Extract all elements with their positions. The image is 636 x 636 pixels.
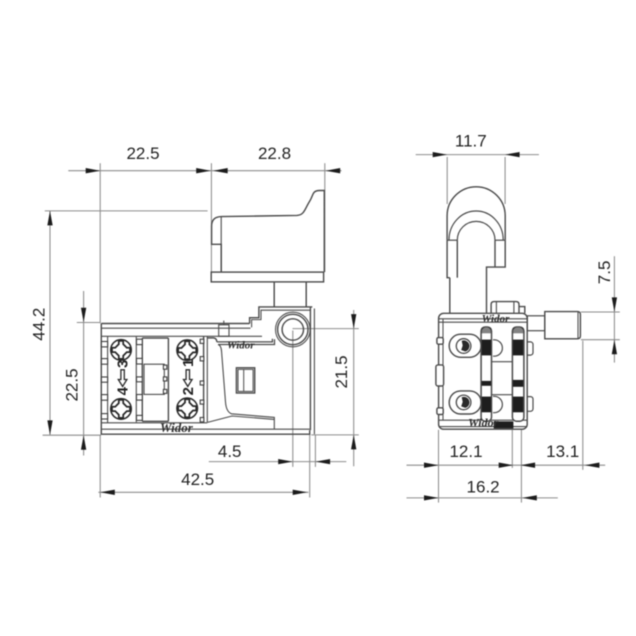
svg-text:13.1: 13.1 — [546, 442, 579, 461]
svg-text:1: 1 — [180, 359, 197, 367]
svg-text:7.5: 7.5 — [595, 261, 614, 285]
svg-text:Widor: Widor — [482, 313, 510, 325]
svg-text:11.7: 11.7 — [455, 132, 487, 151]
svg-text:Widor: Widor — [227, 339, 255, 351]
svg-text:3: 3 — [115, 360, 132, 368]
svg-text:Widor: Widor — [160, 420, 194, 435]
svg-text:21.5: 21.5 — [332, 355, 351, 388]
svg-text:2: 2 — [180, 387, 197, 395]
svg-text:42.5: 42.5 — [181, 470, 214, 489]
svg-text:16.2: 16.2 — [467, 478, 500, 497]
svg-text:22.5: 22.5 — [63, 368, 82, 401]
svg-text:22.8: 22.8 — [258, 144, 291, 163]
svg-text:22.5: 22.5 — [126, 144, 159, 163]
svg-text:4.5: 4.5 — [218, 442, 242, 461]
svg-text:4: 4 — [115, 386, 132, 395]
svg-text:12.1: 12.1 — [449, 442, 482, 461]
svg-text:Widor: Widor — [468, 415, 499, 429]
svg-text:44.2: 44.2 — [29, 308, 48, 341]
